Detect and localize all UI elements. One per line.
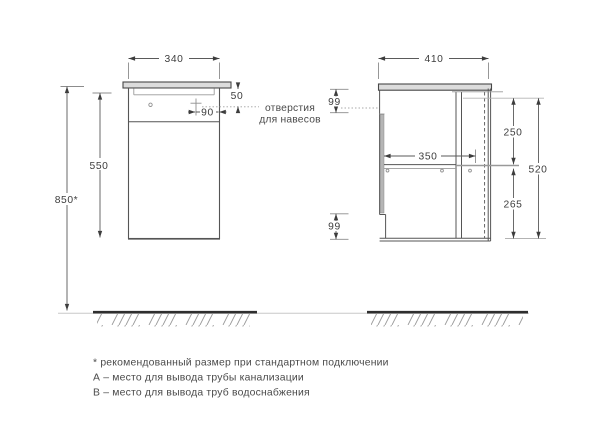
front-view: отверстия для навесов 340 550 850*	[53, 52, 322, 311]
svg-text:250: 250	[504, 128, 523, 139]
floor	[58, 312, 529, 326]
legend-note-a: А – место для вывода трубы канализации	[93, 372, 304, 384]
svg-text:99: 99	[328, 222, 341, 233]
svg-text:99: 99	[328, 97, 341, 108]
dim-side-upper-section: 250	[500, 98, 527, 164]
dim-total-height: 850*	[53, 87, 85, 311]
svg-text:50: 50	[231, 91, 244, 102]
side-shelf	[384, 165, 519, 172]
dim-side-top-gap: 99	[327, 89, 379, 112]
side-bottom-notch	[380, 215, 386, 239]
svg-text:850*: 850*	[55, 195, 79, 206]
legend-note-b: В – место для вывода труб водоснабжения	[93, 387, 310, 399]
svg-text:350: 350	[419, 152, 438, 163]
dim-hanger-offset-vertical: 50	[231, 83, 244, 113]
svg-text:520: 520	[529, 165, 548, 176]
dim-front-width: 340	[129, 52, 220, 79]
front-countertop	[123, 82, 231, 88]
legend: * рекомендованный размер при стандартном…	[93, 358, 389, 399]
svg-text:265: 265	[504, 200, 523, 211]
hanger-note-line2: для навесов	[259, 115, 321, 126]
dim-side-depth: 410	[379, 52, 489, 79]
svg-text:410: 410	[425, 54, 444, 65]
legend-note-recommended: * рекомендованный размер при стандартном…	[93, 358, 389, 369]
dim-front-height: 550	[86, 93, 112, 238]
side-view: 410 99 99 350 250	[327, 52, 552, 241]
cabinet-spec-drawing: отверстия для навесов 340 550 850*	[0, 0, 600, 436]
floor-hatching-left	[97, 314, 250, 327]
hanger-note-line1: отверстия	[265, 103, 315, 114]
technical-drawing-canvas: отверстия для навесов 340 550 850*	[0, 0, 600, 436]
svg-text:90: 90	[201, 108, 214, 119]
side-door-panel	[380, 115, 384, 214]
svg-text:550: 550	[90, 161, 109, 172]
dim-side-carcass-height: 520	[525, 98, 552, 238]
floor-hatching-right	[371, 314, 523, 327]
side-countertop	[379, 84, 492, 90]
dim-side-bottom-gap: 99	[327, 214, 349, 240]
svg-text:340: 340	[165, 54, 184, 65]
dim-side-lower-section: 265	[500, 169, 527, 239]
